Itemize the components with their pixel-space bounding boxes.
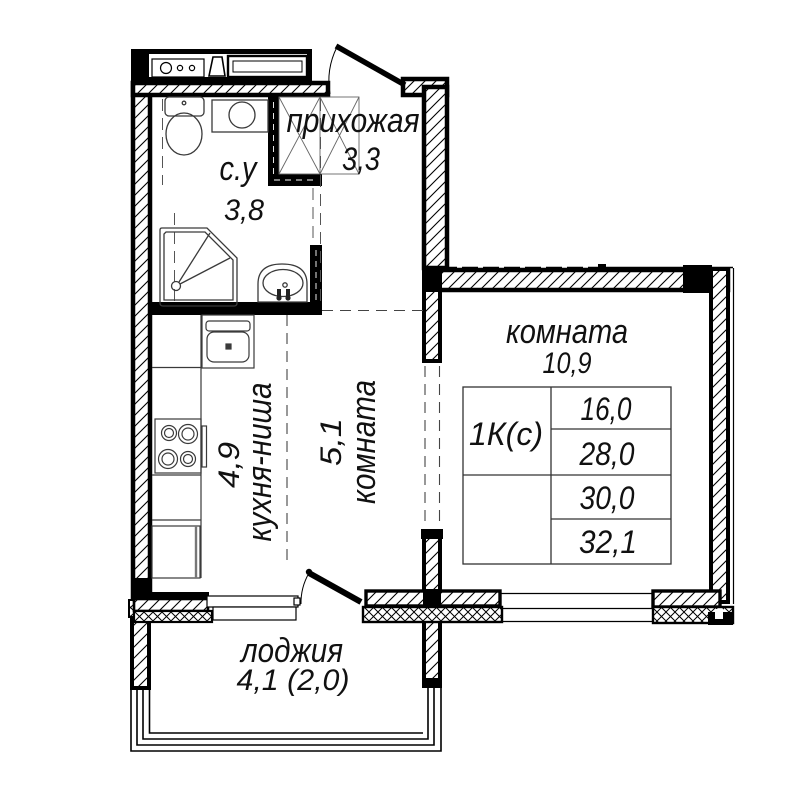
svg-text:комната: комната [345,380,383,504]
svg-text:3,8: 3,8 [224,194,264,227]
svg-text:30,0: 30,0 [580,480,635,516]
svg-text:10,9: 10,9 [543,347,592,380]
svg-text:комната: комната [506,313,628,351]
svg-text:с.у: с.у [220,150,259,188]
svg-text:1К(с): 1К(с) [469,416,543,452]
svg-text:5,1: 5,1 [315,418,348,466]
svg-text:28,0: 28,0 [579,436,635,472]
svg-text:прихожая: прихожая [287,102,420,140]
svg-text:4,1 (2,0): 4,1 (2,0) [237,664,350,697]
svg-text:3,3: 3,3 [342,141,380,177]
svg-text:32,1: 32,1 [579,524,637,560]
svg-text:16,0: 16,0 [581,391,632,427]
svg-text:кухня-ниша: кухня-ниша [241,383,279,542]
